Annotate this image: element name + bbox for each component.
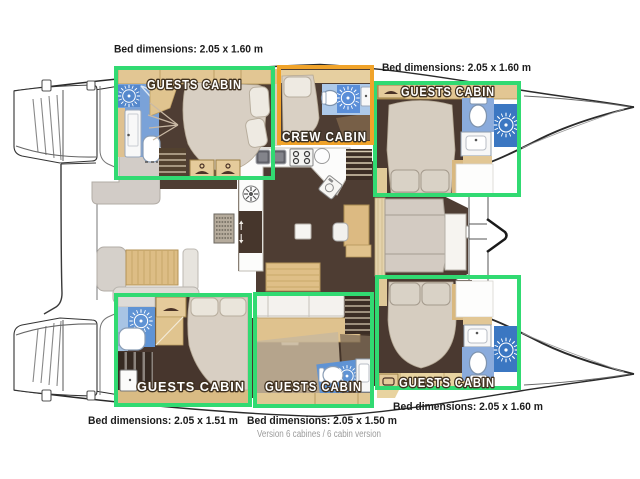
svg-text:GUESTS CABIN: GUESTS CABIN <box>265 380 362 394</box>
svg-text:GUESTS CABIN: GUESTS CABIN <box>147 78 242 92</box>
svg-text:Bed dimensions: 2.05 x 1.60 m: Bed dimensions: 2.05 x 1.60 m <box>114 44 263 56</box>
svg-text:Version 6 cabines / 6 cabin ve: Version 6 cabines / 6 cabin version <box>257 429 381 440</box>
svg-text:CREW CABIN: CREW CABIN <box>282 130 367 144</box>
svg-text:Bed dimensions: 2.05 x 1.60 m: Bed dimensions: 2.05 x 1.60 m <box>393 401 543 413</box>
svg-text:GUESTS CABIN: GUESTS CABIN <box>399 376 495 390</box>
svg-text:Bed dimensions: 2.05 x 1.50 m: Bed dimensions: 2.05 x 1.50 m <box>247 415 397 427</box>
svg-text:GUESTS CABIN: GUESTS CABIN <box>401 85 495 99</box>
svg-text:Bed dimensions: 2.05 x 1.51 m: Bed dimensions: 2.05 x 1.51 m <box>88 415 238 427</box>
svg-text:Bed dimensions: 2.05 x 1.60 m: Bed dimensions: 2.05 x 1.60 m <box>382 62 531 74</box>
svg-text:GUESTS CABIN: GUESTS CABIN <box>137 380 245 394</box>
